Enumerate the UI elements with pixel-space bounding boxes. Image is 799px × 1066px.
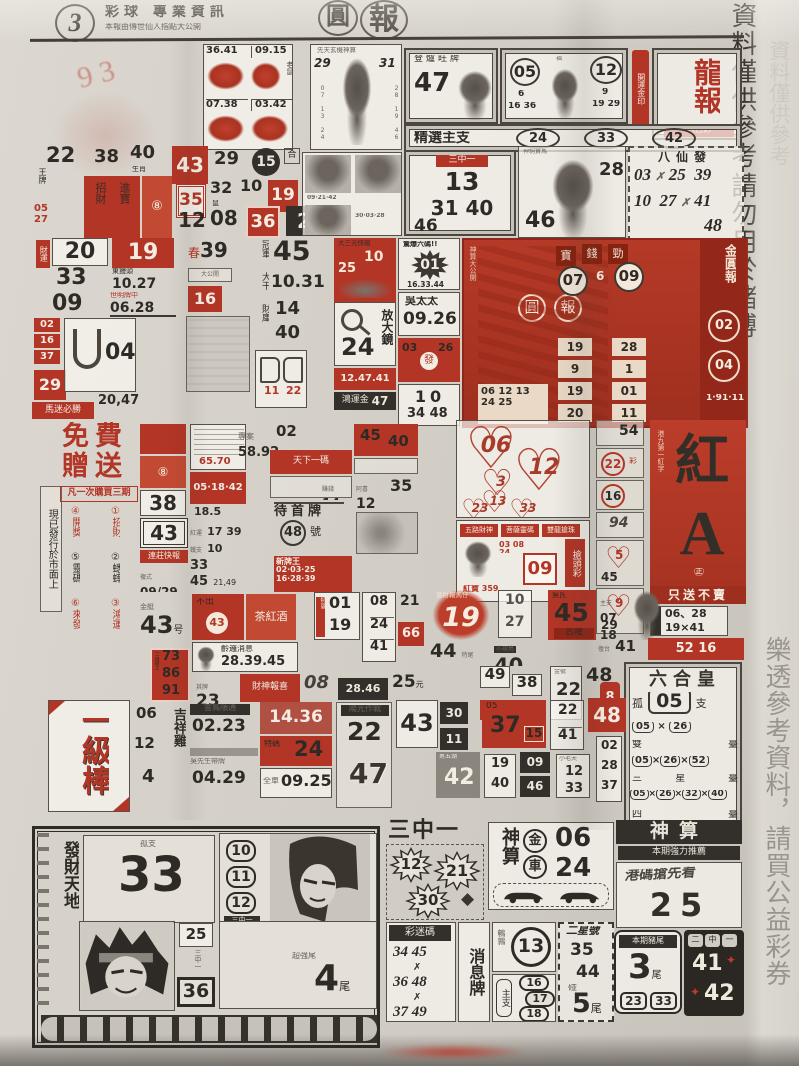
date-cell-4: 03.42 bbox=[251, 99, 293, 111]
f09-num: 09 bbox=[527, 756, 544, 769]
mini-h2: 菩薩靈碼 bbox=[501, 524, 539, 537]
num-40: 40 bbox=[130, 144, 164, 166]
fine-print-lines bbox=[194, 429, 244, 455]
num-33c: 33 bbox=[56, 266, 104, 292]
face2-box bbox=[79, 921, 175, 1011]
ten-num: 10 bbox=[413, 387, 447, 407]
treasure-ship-art bbox=[454, 68, 496, 120]
jyb-chip-9: 9 bbox=[558, 360, 592, 378]
red-45-num: 45 bbox=[554, 600, 594, 628]
num-12-sub2: 19 29 bbox=[592, 100, 628, 111]
shiming-label: 世明牌中 bbox=[110, 292, 154, 301]
bx-27: 27 bbox=[660, 192, 677, 210]
side-54: 54 bbox=[619, 424, 643, 442]
yijibang-ad: 一級棒 bbox=[48, 700, 130, 812]
jyb-s04-n: 04 bbox=[715, 359, 733, 373]
pill-17-num: 17 bbox=[532, 993, 547, 1005]
num-44-block: 44 特尾 bbox=[430, 642, 484, 668]
erxing-5wei: 5尾 bbox=[572, 990, 612, 1022]
lhh-zhi: 支 bbox=[696, 697, 707, 710]
f41: 41 bbox=[558, 727, 582, 749]
jyb-09: 09 bbox=[619, 269, 640, 285]
wu2-num: 04.29 bbox=[192, 770, 256, 792]
yi: 一 bbox=[77, 705, 109, 735]
lhh-05: 05 bbox=[648, 692, 690, 714]
num-19-big-red: 19 bbox=[112, 238, 174, 268]
red-e2-text: 茶紅酒 bbox=[255, 611, 288, 623]
chip-25g: 25 bbox=[179, 923, 213, 947]
dagan-label: 大干 bbox=[255, 272, 269, 296]
f30: 30 bbox=[440, 702, 468, 724]
gray-chip: 大公開 bbox=[188, 268, 232, 282]
magnifier-label: 放大鏡 bbox=[377, 309, 393, 363]
pill-17: 17 bbox=[525, 991, 555, 1007]
pig-band: 本期豬尾 bbox=[619, 935, 677, 948]
jyb-head2-char: 錢 bbox=[587, 248, 598, 260]
zhuzhi-box: 主支 16 17 18 bbox=[492, 974, 556, 1022]
lhh-title: 六合皇 bbox=[636, 668, 734, 690]
num-40c: 40 bbox=[275, 324, 315, 346]
side-22: 22 bbox=[605, 458, 622, 471]
face1-box: 10 11 12 三中一 bbox=[219, 833, 377, 925]
ship-10: 10 bbox=[364, 250, 390, 266]
lhh-line2: 05 × 26 bbox=[632, 722, 738, 740]
portrait-art-1 bbox=[305, 155, 351, 193]
chip-33-num: 33 bbox=[655, 995, 672, 1008]
gold-num: 47 bbox=[372, 395, 389, 408]
red-45-tag: 吉隆 bbox=[554, 628, 594, 639]
chips-2536: 25 三中一 36 bbox=[177, 923, 217, 1009]
stove-ad: 登爐旺牌 47 bbox=[404, 48, 498, 124]
erxing-title: 二星號 bbox=[566, 926, 612, 940]
num-35: 35 bbox=[179, 192, 203, 210]
portrait-art-3 bbox=[305, 205, 351, 235]
burst-30-in: 30 bbox=[409, 886, 447, 916]
chips-2166: 2166 bbox=[398, 592, 426, 662]
num-08: 08 bbox=[210, 208, 244, 236]
num-0925-tag: 全車 bbox=[263, 777, 279, 793]
dark-4142-box: 二 中 一 41 ✦ 42 ✦ bbox=[684, 930, 744, 1016]
dk-42: 42 bbox=[704, 982, 738, 1008]
jyb-head3-char: 勁 bbox=[613, 248, 624, 260]
red-smudge bbox=[378, 1044, 528, 1060]
jyb-white-chip: 06 12 1324 25 bbox=[478, 384, 548, 424]
side-22-tag: 彩 bbox=[629, 457, 641, 469]
red-eagle-art bbox=[250, 112, 291, 149]
num-43-frame: 43 bbox=[140, 518, 188, 548]
manga-face-1 bbox=[264, 834, 376, 924]
tail-num-wrap: 4尾 bbox=[314, 960, 368, 1004]
num-29c: 29 bbox=[39, 377, 61, 394]
portrait-art-2 bbox=[355, 155, 401, 193]
baxian-title: 八仙發 bbox=[658, 151, 728, 165]
num-1436-block: 14.36 bbox=[260, 702, 332, 734]
chips-0119-tag: 特區 bbox=[316, 597, 325, 637]
lhh-a1: 05 bbox=[632, 722, 654, 733]
god-title: 神算 bbox=[493, 827, 519, 881]
pill-11: 11 bbox=[226, 866, 256, 888]
red-grid-r2: 16·28·39 bbox=[276, 574, 315, 583]
num-23-block: 其牌 23 bbox=[196, 676, 236, 704]
f30-num: 30 bbox=[446, 707, 463, 720]
free-gift: 免費贈送 bbox=[62, 422, 138, 486]
side-94: 94 bbox=[609, 516, 637, 534]
lottery-newspaper-photo: 3 彩球 專業資訊 本報由傳世仙人指點大公開 圓 報 資料僅供參考 請勿用於賭博… bbox=[0, 0, 799, 1066]
corner-deco-tl bbox=[49, 701, 65, 715]
jyb-head-1: 寶 bbox=[556, 246, 576, 266]
side-16: 16 bbox=[605, 490, 622, 503]
jyb-19b: 19 bbox=[567, 385, 584, 398]
dates-grid: 36.41 09.15 老鼠 07.38 03.42 bbox=[203, 44, 293, 150]
side-5: 5 bbox=[615, 549, 627, 563]
chip-36-num: 36 bbox=[183, 982, 209, 1002]
ship-title: 大三元快報 bbox=[338, 240, 394, 249]
margin-note-ghost: 資料僅供參考 bbox=[760, 40, 790, 320]
hong-a-1941: 19×41 bbox=[665, 622, 725, 636]
wutaitai-ad: 吳太太 09.26 bbox=[398, 292, 460, 336]
f42-label: 男五湖 bbox=[439, 754, 477, 763]
jyb-07: 07 bbox=[563, 273, 584, 289]
mini-h2-text: 菩薩靈碼 bbox=[506, 527, 534, 534]
burst-12: 12 bbox=[389, 847, 433, 883]
jin-43: 金艇43号 bbox=[140, 596, 190, 644]
baxian-row1: 03 ✗ 25 39 bbox=[634, 166, 742, 188]
bx-10: 10 bbox=[634, 192, 651, 210]
triple-label: 三連王 bbox=[151, 652, 159, 698]
f1233-label: 小毛夫 bbox=[559, 756, 589, 764]
burst-12-in: 12 bbox=[393, 850, 429, 880]
burst-21: 21 bbox=[433, 851, 481, 891]
god-06: 06 bbox=[555, 825, 607, 855]
band-124741-text: 12.47.41 bbox=[340, 374, 389, 385]
num-15-circle: 15 bbox=[252, 148, 280, 176]
f42-block: 男五湖42 bbox=[436, 752, 480, 798]
hong-a-ad: 港九第一紅字 紅 A ㊣ bbox=[650, 420, 746, 586]
deity-side-nums-2: 28 19 46 bbox=[389, 85, 399, 145]
caimi-header: 彩迷碼 bbox=[389, 925, 451, 941]
guzhi-box: 孤支33 bbox=[83, 835, 215, 923]
num-38d: 38 bbox=[149, 493, 177, 514]
erxing-44: 44 bbox=[576, 964, 612, 984]
lhh-san: 三 bbox=[632, 774, 642, 784]
gray-filler-2 bbox=[354, 458, 418, 474]
szy2-header: 三中一 bbox=[388, 818, 484, 844]
jyb-vert-title: 金圓報 bbox=[714, 244, 736, 304]
jyb-circle-07: 07 bbox=[558, 266, 588, 296]
deity-ad: 先天玄機神算 29 31 07 13 24 28 19 46 bbox=[310, 44, 402, 150]
gray-chip-text: 大公開 bbox=[201, 272, 219, 278]
axi-num: 12 bbox=[356, 496, 375, 508]
dagan: 大干10.31 bbox=[255, 270, 331, 298]
f22: 22 bbox=[558, 703, 582, 725]
jyb-s3: 1·91·11 bbox=[706, 394, 746, 408]
pick-1-num: 24 bbox=[529, 132, 547, 146]
jyb-6: 6 bbox=[596, 270, 610, 286]
fa-char: 發 bbox=[424, 356, 434, 367]
star-burst-icon: 01 bbox=[411, 250, 449, 280]
x-sep: × bbox=[649, 790, 657, 799]
erxing-35: 35 bbox=[570, 942, 606, 962]
chips-0718: 主支0718 bbox=[600, 592, 628, 640]
szy-46: 46 bbox=[414, 218, 454, 236]
f09: 09 bbox=[520, 752, 550, 773]
red-figure-art bbox=[206, 59, 247, 97]
hong-a-seal: ㊣ bbox=[694, 568, 710, 582]
spring-39: 春39 bbox=[188, 240, 238, 266]
num-4938: 4938 bbox=[480, 666, 546, 698]
caimi-r3: 37 49 bbox=[393, 1005, 451, 1022]
num-38: 38 bbox=[94, 148, 126, 172]
chip-37: 37 bbox=[34, 350, 60, 364]
fa-26: 26 bbox=[438, 342, 458, 356]
lr-label: 吉祥雞 bbox=[166, 708, 186, 798]
band-tianxia-text: 天下一碼 bbox=[293, 457, 329, 466]
gift-item-6: ⑥來發 bbox=[64, 598, 80, 640]
lhh-line1: 孤 05 支 bbox=[632, 692, 738, 718]
star-01: 01 bbox=[411, 250, 449, 280]
jyb-chip-19b: 19 bbox=[558, 382, 592, 400]
num-1027: 10.27 bbox=[112, 277, 176, 293]
side-cell-5: ♡545 bbox=[596, 540, 644, 586]
jyb-head1-char: 寶 bbox=[561, 250, 572, 262]
red-ad-2-text: ⑧ bbox=[151, 200, 163, 214]
jyb-chip-1: 1 bbox=[612, 360, 646, 378]
col-022837: 022837 bbox=[596, 736, 622, 802]
side-22-ring: 22 bbox=[601, 452, 625, 476]
hong-a-side: 港九第一紅字 bbox=[652, 430, 664, 576]
num-41-block: 復台 41 bbox=[598, 638, 644, 662]
deity-num-left: 29 bbox=[314, 57, 338, 71]
fa-03: 03 bbox=[402, 342, 422, 356]
red-rooster-art bbox=[250, 59, 283, 97]
east-label: 東饅頭 bbox=[112, 268, 152, 277]
yun-label: 雲鳥順通 bbox=[190, 704, 250, 715]
f46-num: 46 bbox=[527, 780, 544, 793]
hong-a-band: 只送不賣 bbox=[650, 586, 746, 604]
jyb-20: 20 bbox=[567, 407, 584, 420]
god-car-box: 神算 金 車 06 24 bbox=[488, 822, 614, 910]
red-0537: 053715 bbox=[482, 700, 546, 748]
a-char-text: A bbox=[680, 502, 725, 567]
chip-01: 01 bbox=[329, 595, 359, 617]
grab-first-text: 搶頭彩 bbox=[570, 550, 579, 577]
col-28: 28 bbox=[601, 759, 621, 779]
band-tianxia: 天下一碼 bbox=[270, 450, 352, 474]
mini-col: 0527 bbox=[34, 204, 78, 238]
num-1436: 14.36 bbox=[269, 709, 323, 727]
chip-36g: 36 bbox=[177, 977, 215, 1007]
quail-label: 鵪鶉 bbox=[495, 929, 505, 967]
star-head: 驚爆六碼!! bbox=[403, 241, 459, 250]
pick-3-num: 42 bbox=[665, 132, 683, 146]
stove-title: 登爐旺牌 bbox=[414, 55, 494, 66]
chain-left bbox=[37, 833, 49, 1015]
shensuan-title: 神算 bbox=[650, 822, 708, 842]
col-37: 37 bbox=[601, 779, 621, 799]
pill-10: 10 bbox=[226, 840, 256, 862]
lhh-cap1: 雙臺 bbox=[632, 740, 738, 754]
wu2-label: 吳先生帶牌 bbox=[190, 758, 254, 768]
u04-box: 04 bbox=[64, 318, 136, 392]
red-grid: 新牌王02·03·2516·28·39 bbox=[274, 556, 352, 592]
dk-chip-1: 二 bbox=[688, 934, 703, 947]
jyb-1: 1 bbox=[625, 363, 633, 376]
dots bbox=[41, 1017, 377, 1041]
logo-char-yuan: 圓 bbox=[326, 5, 350, 30]
news-text: 消息牌 bbox=[466, 948, 483, 996]
mini-27: 27 bbox=[34, 214, 48, 225]
num-24-tag: 特碼 bbox=[264, 740, 284, 760]
lhh-shuang: 雙 bbox=[632, 740, 642, 750]
num-43-red: 43 bbox=[172, 146, 208, 184]
lucky-num-12: 12 bbox=[590, 56, 622, 84]
portrait-nums-1: 09·21·42 bbox=[307, 195, 367, 203]
baxian-row3: 48 bbox=[704, 216, 740, 240]
lhh-tai2: 臺 bbox=[728, 774, 738, 785]
num-12-sub: 9 bbox=[602, 88, 616, 99]
caimi-box: 彩迷碼 34 45 ✗ 36 48 ✗ 37 49 bbox=[386, 922, 456, 1022]
side-16-ring: 16 bbox=[601, 484, 625, 508]
logo-circle-2: 報 bbox=[360, 0, 408, 40]
car-icon bbox=[500, 888, 548, 904]
pig-band-text: 本期豬尾 bbox=[632, 937, 664, 945]
star-ad: 驚爆六碼!! 01 16.33.44 bbox=[398, 238, 460, 290]
jyb-chip-28: 28 bbox=[612, 338, 646, 356]
car-char: 車 bbox=[528, 860, 541, 874]
lhh-c3: 32 bbox=[682, 790, 701, 800]
dk-1: 二 bbox=[692, 936, 700, 944]
jin-43-unit: 号 bbox=[173, 625, 183, 636]
num-15: 15 bbox=[256, 155, 275, 170]
num-0628: 06.28 bbox=[110, 301, 176, 317]
message-box: 齡邏消息28.39.45 bbox=[192, 642, 298, 672]
dk-41: 41 bbox=[692, 952, 726, 978]
bx-25: 25 bbox=[669, 166, 686, 184]
quail-box: 鵪鶉13 bbox=[492, 922, 556, 972]
hk-25: 25 bbox=[637, 887, 723, 925]
caimi-x1: ✗ bbox=[413, 963, 427, 975]
chip-66-num: 66 bbox=[402, 627, 420, 641]
mini-h3-text: 雙龍搶珠 bbox=[547, 527, 575, 534]
pig-3: 3尾 bbox=[628, 950, 672, 990]
num-09c: 09 bbox=[52, 292, 102, 318]
num-36-red: 36 bbox=[246, 206, 280, 238]
lhh-line3: 05×26×52 bbox=[632, 756, 738, 774]
champion: 冠軍45 bbox=[255, 238, 331, 268]
jyb-s02-n: 02 bbox=[715, 319, 733, 333]
red-ad-1: 招財 進寶 bbox=[84, 176, 140, 238]
band-124741: 12.47.41 bbox=[334, 368, 396, 390]
side-cell-54: 54 bbox=[596, 420, 644, 446]
jyb-chip-01: 01 bbox=[612, 382, 646, 400]
lhh-line4: 05×26×32×40 bbox=[630, 790, 740, 808]
gift-item-2: ②蟋蟀 bbox=[104, 552, 120, 596]
horse-28: 28 bbox=[599, 161, 625, 181]
red-40: 40 bbox=[388, 434, 414, 454]
f40: 40 bbox=[491, 777, 513, 797]
sunshine-47: 47 bbox=[349, 759, 389, 795]
num-44: 44 bbox=[430, 642, 456, 662]
seal-text: 開運金印 bbox=[636, 73, 644, 105]
dk-chip-2: 中 bbox=[705, 934, 720, 947]
gold-char: 金 bbox=[528, 834, 541, 848]
ship-ad: 大三元快報 10 25 bbox=[334, 238, 396, 302]
lucky-num-05: 05 bbox=[510, 58, 540, 86]
date-cell-3: 07.38 bbox=[206, 99, 248, 111]
red-19-circle: 發財報馬仔19 bbox=[428, 590, 494, 640]
num-12b: 12 bbox=[178, 210, 208, 236]
magnifier-ad: 24 放大鏡 bbox=[334, 302, 396, 366]
f46: 46 bbox=[520, 776, 550, 797]
f11-num: 11 bbox=[446, 733, 463, 746]
tag-caiyun-text: 財運 bbox=[39, 246, 47, 262]
heart-33-num: 33 bbox=[509, 497, 547, 518]
message-label: 齡邏消息 bbox=[221, 645, 291, 655]
jyb-chipa: 06 12 13 bbox=[481, 386, 530, 397]
jin-43-num: 43 bbox=[140, 611, 173, 639]
hong-a-band-text: 只送不賣 bbox=[668, 589, 728, 602]
zhuan-label: 賺錢 bbox=[322, 486, 334, 493]
deity-side-nums-1: 07 13 24 bbox=[315, 85, 325, 145]
chip-07: 07 bbox=[600, 611, 617, 625]
pill-10-num: 10 bbox=[231, 844, 250, 859]
lhh-cap2: 三 星臺 bbox=[632, 774, 738, 788]
red-19-num-wrap: 19 bbox=[438, 600, 484, 636]
yun-num: 02.23 bbox=[192, 718, 256, 740]
hk-25-num: 25 bbox=[650, 889, 711, 923]
hong-a-0628: 06、28 bbox=[665, 608, 725, 622]
lhh-xing: 星 bbox=[675, 774, 685, 784]
longbao-title: 龍報 bbox=[680, 58, 720, 122]
num-20: 20 bbox=[65, 240, 96, 263]
num-12: 12 bbox=[595, 62, 617, 79]
star-01-num: 01 bbox=[420, 258, 439, 273]
num-24-red: 特碼24 bbox=[260, 736, 332, 766]
szy-13: 13 bbox=[436, 168, 488, 196]
jyb-side-text: 神算大公開 bbox=[464, 246, 476, 420]
caiku: 財庫1440 bbox=[255, 300, 331, 348]
num-36: 36 bbox=[250, 213, 275, 232]
x-mark-2: ✗ bbox=[681, 197, 690, 209]
num-91: 91 bbox=[162, 684, 188, 700]
num-43: 43 bbox=[176, 155, 204, 176]
pill-11-num: 11 bbox=[231, 870, 250, 885]
zhuan-num: 14 bbox=[322, 497, 340, 500]
gray-filler-3 bbox=[356, 512, 418, 554]
lhh-tai1: 臺 bbox=[728, 740, 738, 751]
bird-art bbox=[195, 645, 217, 671]
f43-block: 43 bbox=[396, 700, 438, 748]
num-29: 29 bbox=[214, 150, 246, 174]
num-0925-block: 全車09.25 bbox=[260, 768, 332, 798]
page-number: 3 bbox=[69, 9, 82, 36]
jyb-9: 9 bbox=[571, 363, 579, 376]
gift-item-4: ④開獎 bbox=[64, 506, 80, 550]
portrait-nums-2: 30·03·28 bbox=[355, 213, 401, 221]
red-chip-8: ⑧ bbox=[158, 466, 169, 479]
chip-21: 21 bbox=[400, 594, 424, 616]
axi-label: 阿喜 bbox=[356, 486, 368, 493]
chip-02-n: 02 bbox=[40, 320, 54, 331]
red-e3-text: 財神報喜 bbox=[252, 683, 288, 692]
erxing-wei: 尾 bbox=[591, 1002, 602, 1015]
f2241-block: 2241 bbox=[550, 700, 584, 750]
chips-1027: 1027 bbox=[498, 590, 532, 638]
chip-25-num: 25 bbox=[186, 927, 207, 943]
zhuzhi-text: 主支 bbox=[499, 989, 508, 1007]
num-05: 05 bbox=[514, 64, 536, 81]
book-11: 11 bbox=[264, 385, 282, 399]
